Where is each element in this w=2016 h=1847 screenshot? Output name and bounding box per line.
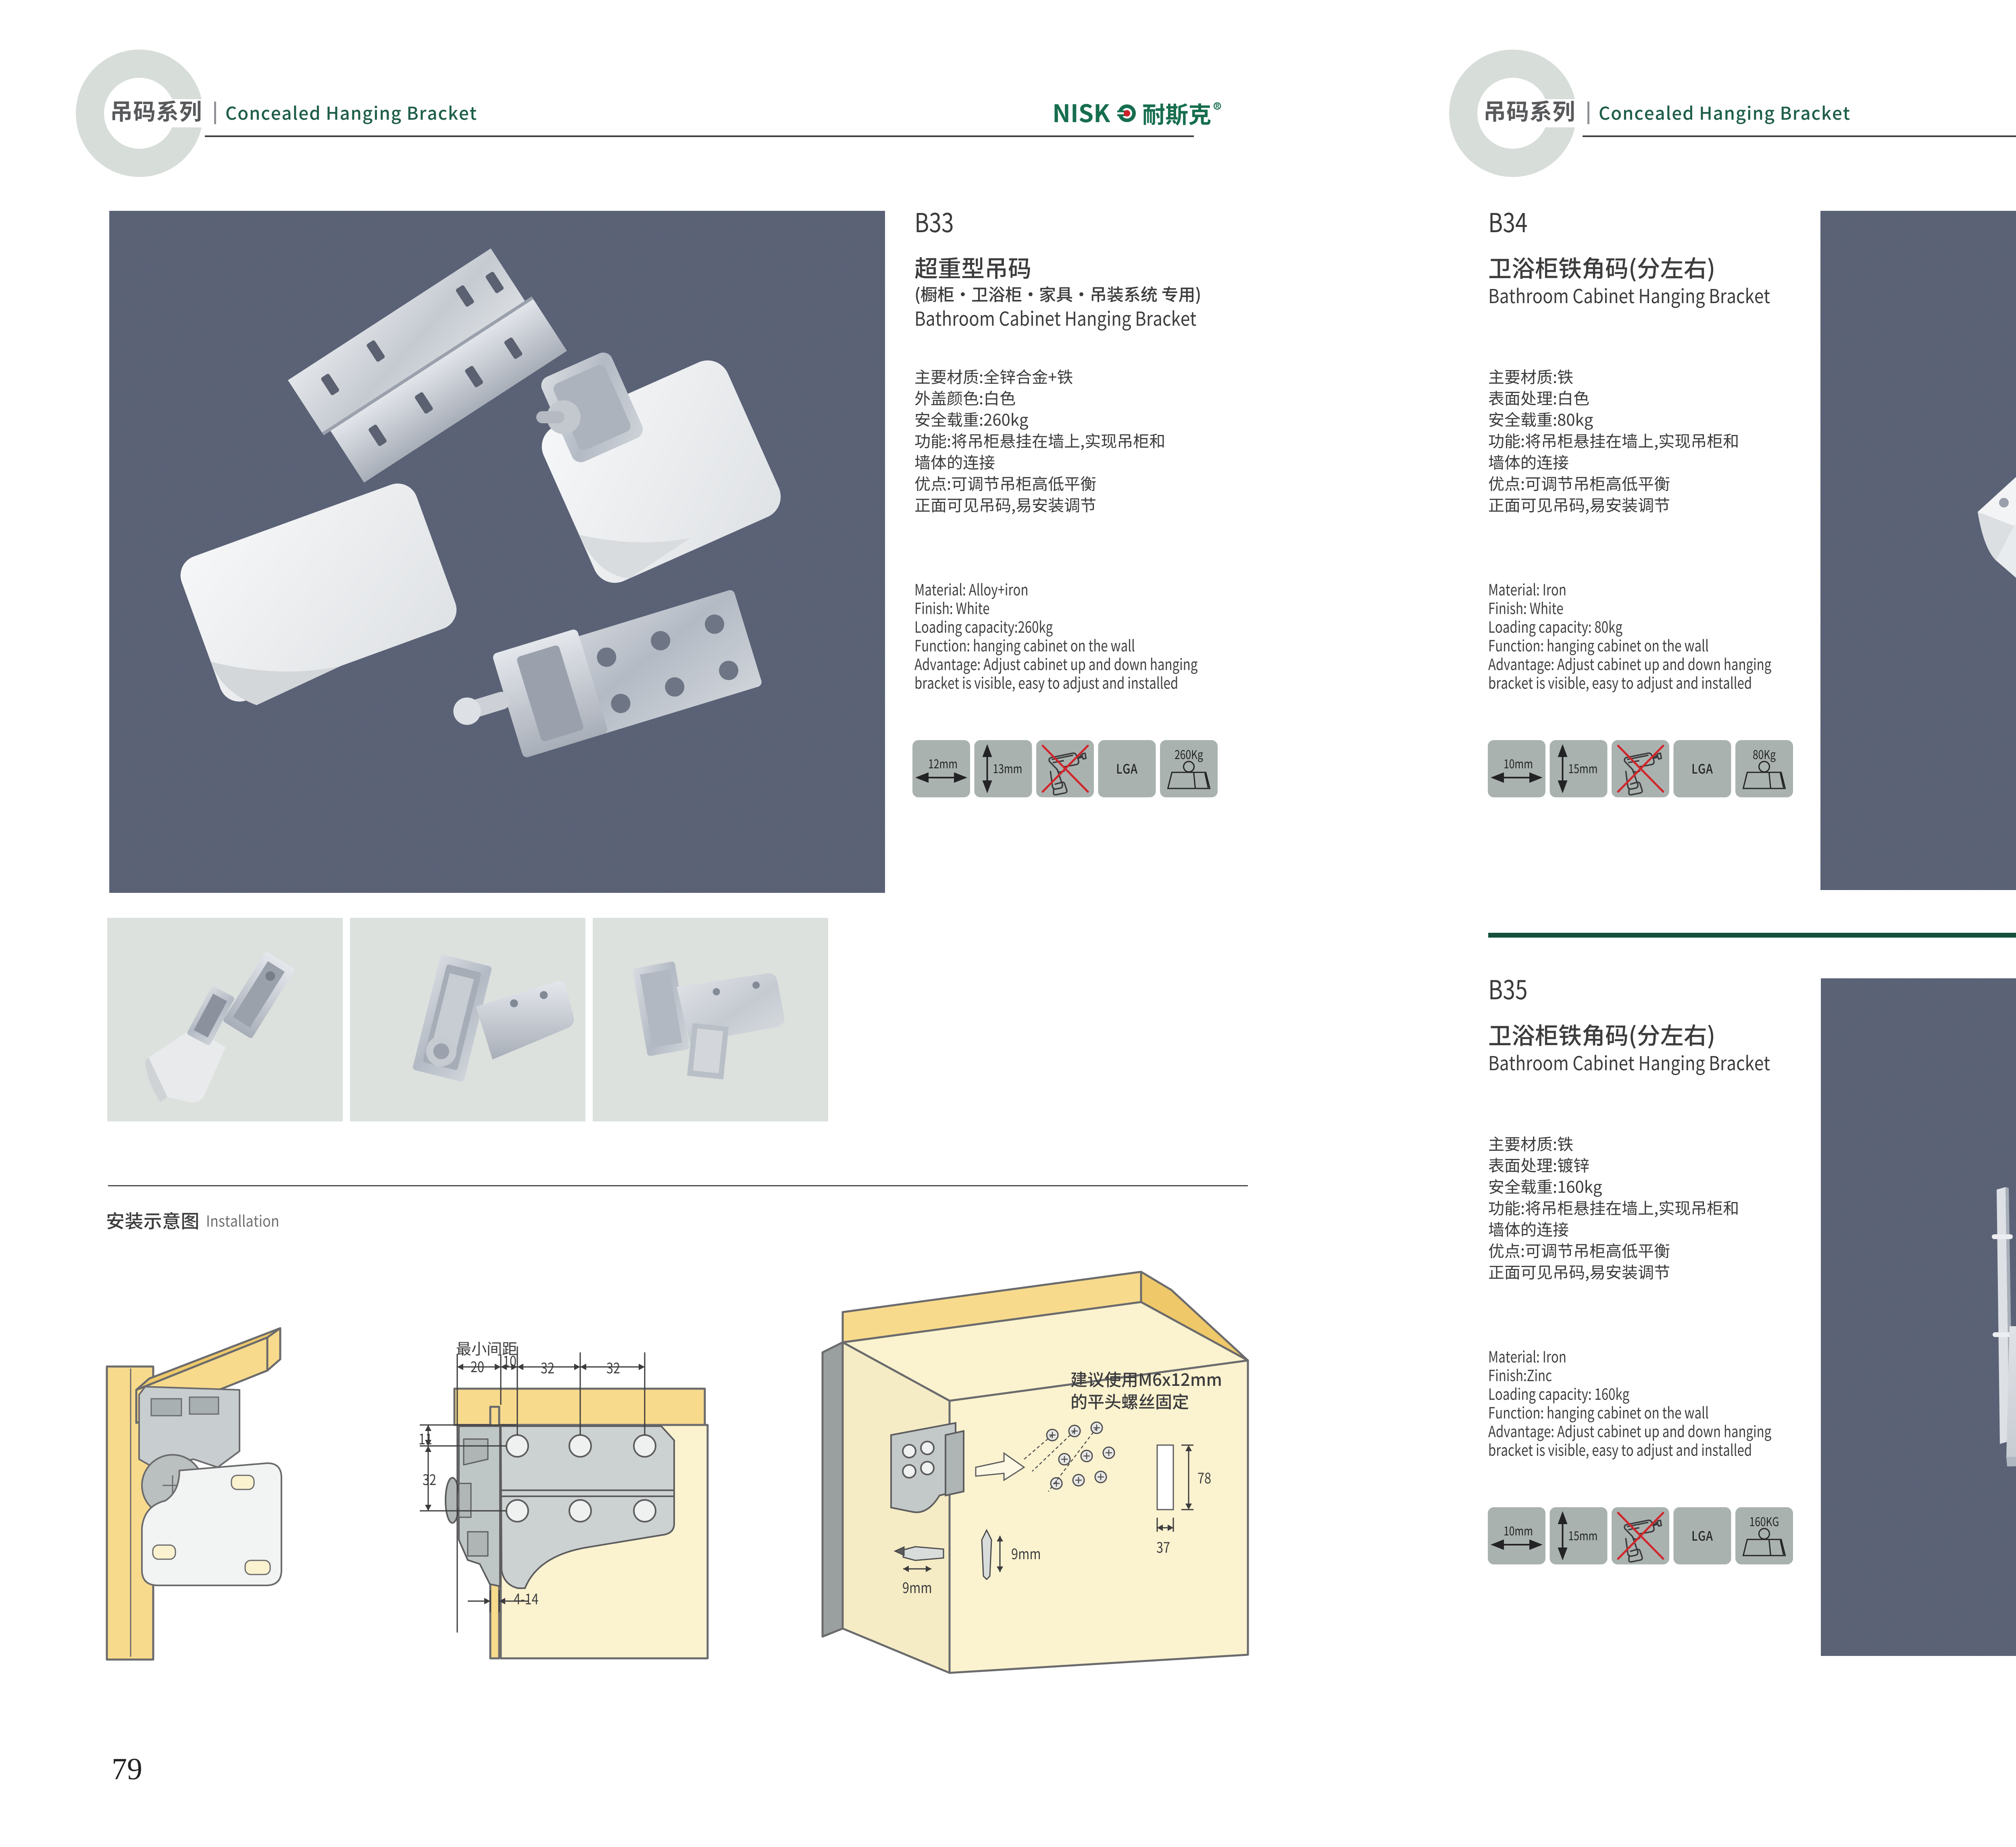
svg-text:79: 79 [112, 1752, 142, 1786]
